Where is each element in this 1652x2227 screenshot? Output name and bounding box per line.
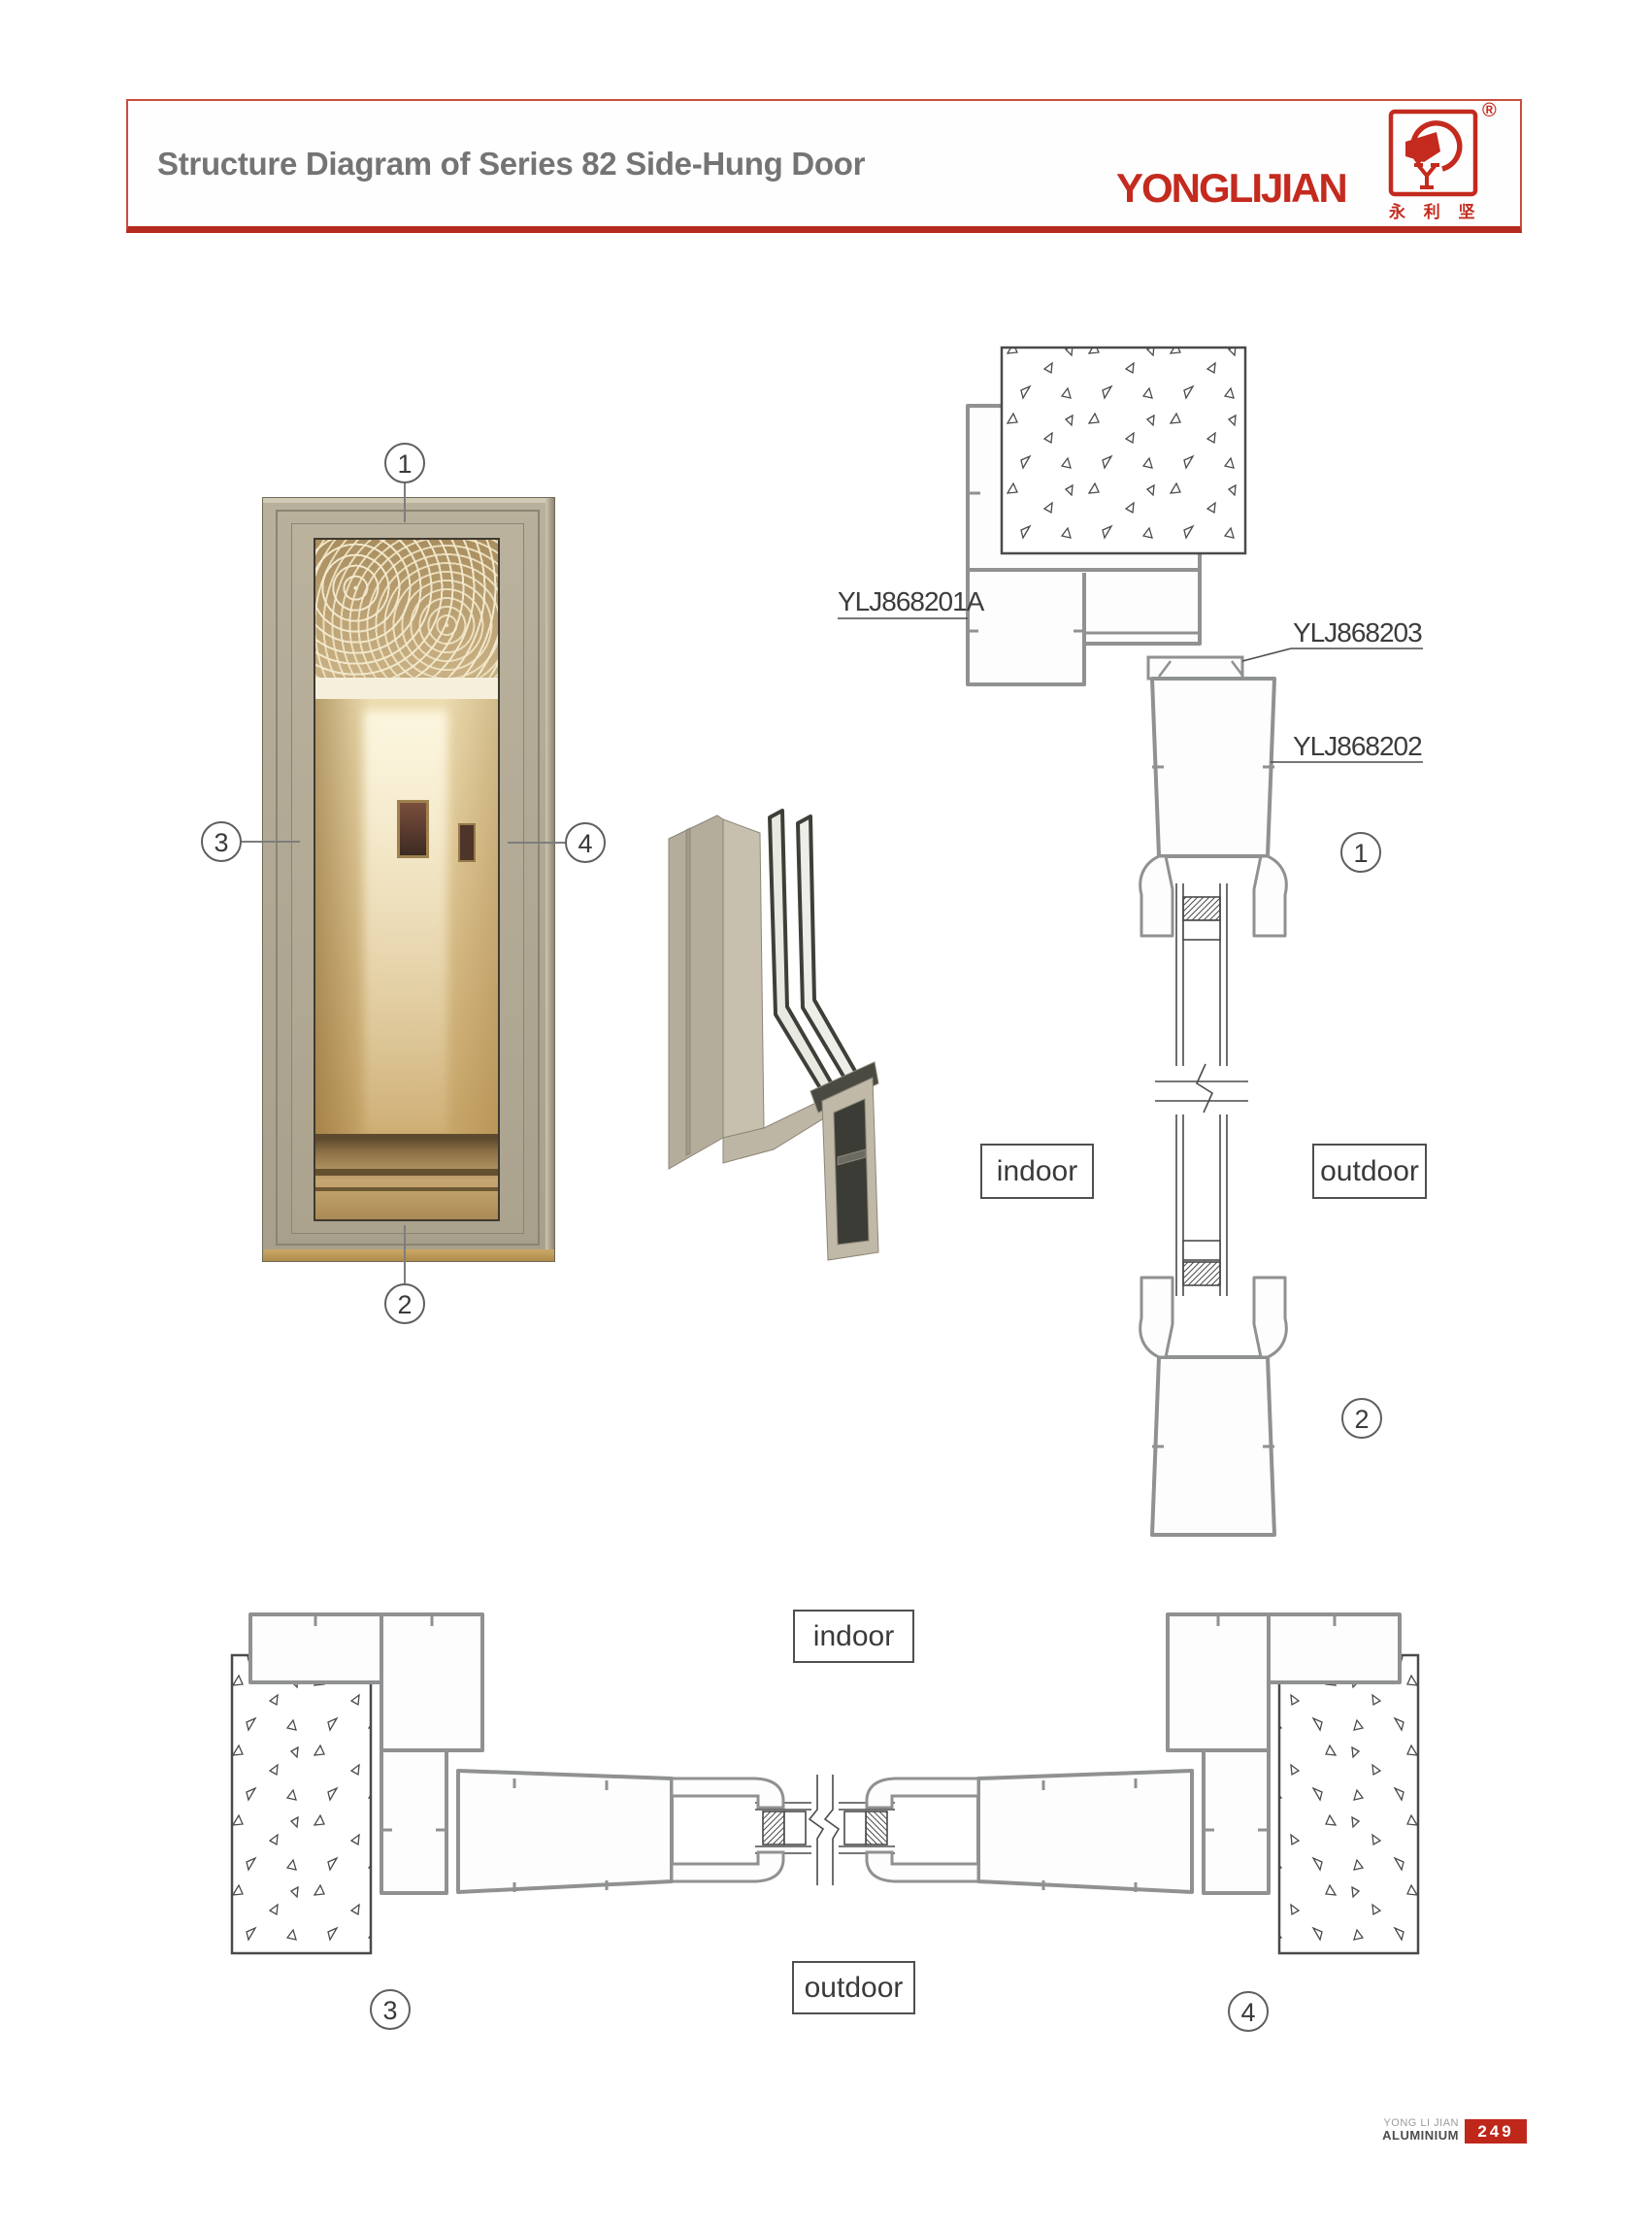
brand-wordmark: YONGLIJIAN bbox=[1116, 165, 1346, 212]
vertical-section-drawing bbox=[835, 340, 1437, 1553]
door-sill-strip bbox=[263, 1249, 554, 1261]
hallway-floor-band bbox=[315, 1169, 498, 1176]
door-glass bbox=[314, 538, 500, 1221]
hallway-light-glow bbox=[364, 711, 447, 1134]
glass-unit-vertical bbox=[1155, 883, 1291, 1296]
hallway-cove-light bbox=[315, 678, 498, 699]
hallway-floor bbox=[315, 1134, 498, 1219]
glazing-bead-profile bbox=[1148, 657, 1243, 679]
glass-unit-left bbox=[755, 1803, 811, 1853]
bottom-outdoor-label: outdoor bbox=[792, 1961, 915, 2014]
top-outdoor-label: outdoor bbox=[1312, 1144, 1427, 1199]
glass-break-symbol bbox=[809, 1775, 839, 1885]
photo-callout-4: 4 bbox=[565, 822, 606, 863]
registered-trademark: ® bbox=[1482, 100, 1497, 122]
page-title: Structure Diagram of Series 82 Side-Hung… bbox=[157, 146, 865, 183]
callout-4-leader bbox=[508, 842, 566, 844]
brand-chinese-name: 永 利 坚 bbox=[1389, 198, 1481, 222]
label-bead-profile: YLJ868203 bbox=[1293, 617, 1422, 648]
footer-division: ALUMINIUM bbox=[1338, 2129, 1459, 2143]
section-callout-1: 1 bbox=[1340, 832, 1381, 873]
jamb-assembly-left bbox=[232, 1614, 811, 1953]
door-frame-side-edge bbox=[545, 498, 554, 1261]
photo-callout-3: 3 bbox=[201, 821, 242, 862]
photo-callout-2: 2 bbox=[384, 1283, 425, 1324]
catalog-page: Structure Diagram of Series 82 Side-Hung… bbox=[0, 0, 1652, 2227]
door-elevation-photo bbox=[262, 497, 555, 1262]
wall-section-left bbox=[232, 1655, 371, 1953]
bottom-indoor-label: indoor bbox=[793, 1610, 914, 1663]
leaf-bottom-profile bbox=[1140, 1278, 1287, 1535]
door-frame-top-edge bbox=[263, 498, 554, 503]
section-callout-3: 3 bbox=[370, 1989, 411, 2030]
jamb-assembly-right bbox=[839, 1614, 1418, 1953]
section-callout-4: 4 bbox=[1228, 1991, 1269, 2032]
hallway-ceiling bbox=[315, 540, 498, 678]
leaf-profile-left bbox=[458, 1771, 672, 1892]
hallway-floor-band-far bbox=[315, 1187, 498, 1191]
brand-logo-icon bbox=[1388, 109, 1479, 198]
label-leaf-profile: YLJ868202 bbox=[1293, 731, 1422, 762]
top-indoor-label: indoor bbox=[980, 1144, 1094, 1199]
hallway-picture-far bbox=[458, 823, 476, 862]
photo-callout-1: 1 bbox=[384, 443, 425, 483]
hallway-picture bbox=[397, 800, 429, 858]
page-number-badge: 249 bbox=[1465, 2119, 1527, 2144]
section-callout-2: 2 bbox=[1341, 1398, 1382, 1439]
wall-section-top bbox=[1002, 348, 1245, 553]
callout-1-leader bbox=[404, 483, 406, 522]
label-frame-profile: YLJ868201A bbox=[838, 586, 983, 617]
callout-2-leader bbox=[404, 1225, 406, 1283]
callout-3-leader bbox=[242, 841, 300, 843]
